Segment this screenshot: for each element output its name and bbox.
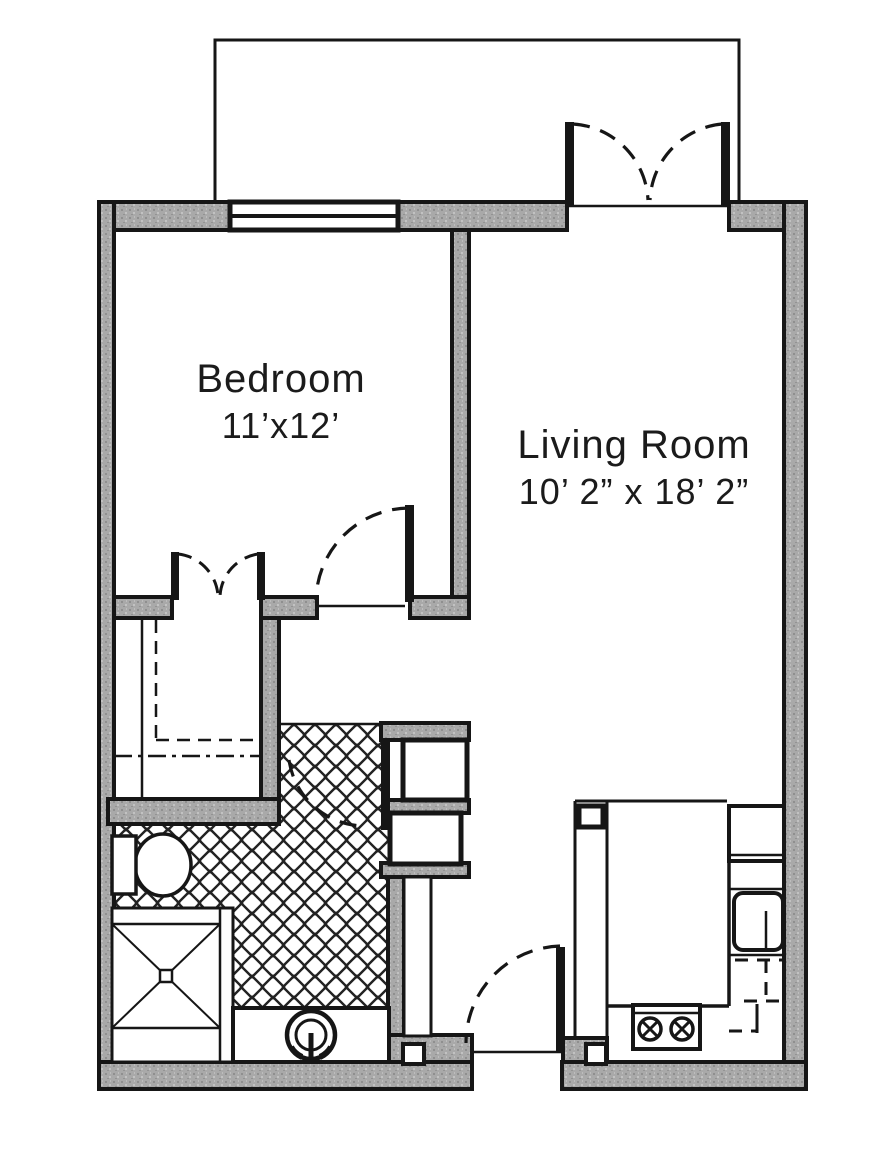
- floor-plan-drawing: Bedroom 11’x12’ Living Room 10’ 2” x 18’…: [0, 0, 890, 1162]
- french-door-arc-right: [650, 124, 722, 200]
- shower-drain: [160, 970, 172, 982]
- utility-closet-upper: [403, 740, 467, 800]
- wall-bedroom-bottom-left: [114, 597, 172, 618]
- wall-bedroom-bottom-mid: [261, 597, 317, 618]
- closet-door-leaf-right: [257, 552, 265, 600]
- wall-utility-top: [381, 723, 469, 740]
- wall-right: [784, 202, 806, 1089]
- range-burner-right: [671, 1018, 693, 1040]
- entry-left-notch: [403, 1044, 424, 1064]
- utility-closet-lower: [390, 813, 461, 864]
- floor-plan: Bedroom 11’x12’ Living Room 10’ 2” x 18’…: [0, 0, 890, 1162]
- wall-top-mid: [398, 202, 567, 230]
- room-labels: Bedroom 11’x12’ Living Room 10’ 2” x 18’…: [196, 357, 750, 512]
- hall-chase: [404, 877, 431, 1036]
- closet-door-arc-left: [178, 554, 218, 596]
- closet-double-doors: [171, 552, 265, 600]
- balcony-french-doors: [565, 122, 730, 206]
- french-door-arc-left: [573, 124, 648, 200]
- bedroom-door: [316, 505, 414, 606]
- kitchen-bar-post: [579, 806, 603, 827]
- wall-bottom-right: [562, 1062, 806, 1089]
- vanity: [233, 1008, 389, 1062]
- french-door-leaf-left: [565, 122, 574, 205]
- balcony: [215, 40, 739, 204]
- entry-door: [466, 946, 565, 1053]
- bedroom-door-arc: [316, 508, 409, 600]
- living-room-dimensions: 10’ 2” x 18’ 2”: [519, 471, 749, 512]
- upper-cabinet-dashed-lines: [729, 960, 784, 1033]
- entry-right-notch: [586, 1044, 606, 1064]
- entry-door-arc: [466, 946, 560, 1043]
- bedroom-dimensions: 11’x12’: [222, 405, 340, 446]
- bedroom-label: Bedroom: [196, 357, 365, 401]
- bedroom-closet-interior: [114, 620, 261, 797]
- kitchen: [575, 801, 784, 1062]
- range-burner-left: [639, 1018, 661, 1040]
- toilet: [112, 834, 191, 896]
- wall-bottom-left: [99, 1062, 472, 1089]
- kitchen-sink: [729, 893, 784, 955]
- living-room-label: Living Room: [517, 423, 750, 467]
- shower-stall: [112, 908, 233, 1062]
- wall-bathroom-top: [108, 799, 279, 824]
- wall-entry-left-stub: [388, 1035, 472, 1062]
- bedroom-door-leaf: [405, 505, 414, 602]
- wall-bedroom-living: [452, 230, 469, 618]
- refrigerator: [729, 806, 784, 861]
- range: [633, 1005, 700, 1049]
- wall-closet-right: [261, 618, 279, 818]
- french-door-leaf-right: [721, 122, 730, 205]
- entry-door-leaf: [556, 947, 565, 1053]
- wall-top-left: [99, 202, 231, 230]
- closet-door-leaf-left: [171, 552, 179, 600]
- wall-bedroom-foot: [410, 597, 469, 618]
- closet-door-arc-right: [220, 554, 258, 596]
- bedroom-window: [230, 202, 398, 230]
